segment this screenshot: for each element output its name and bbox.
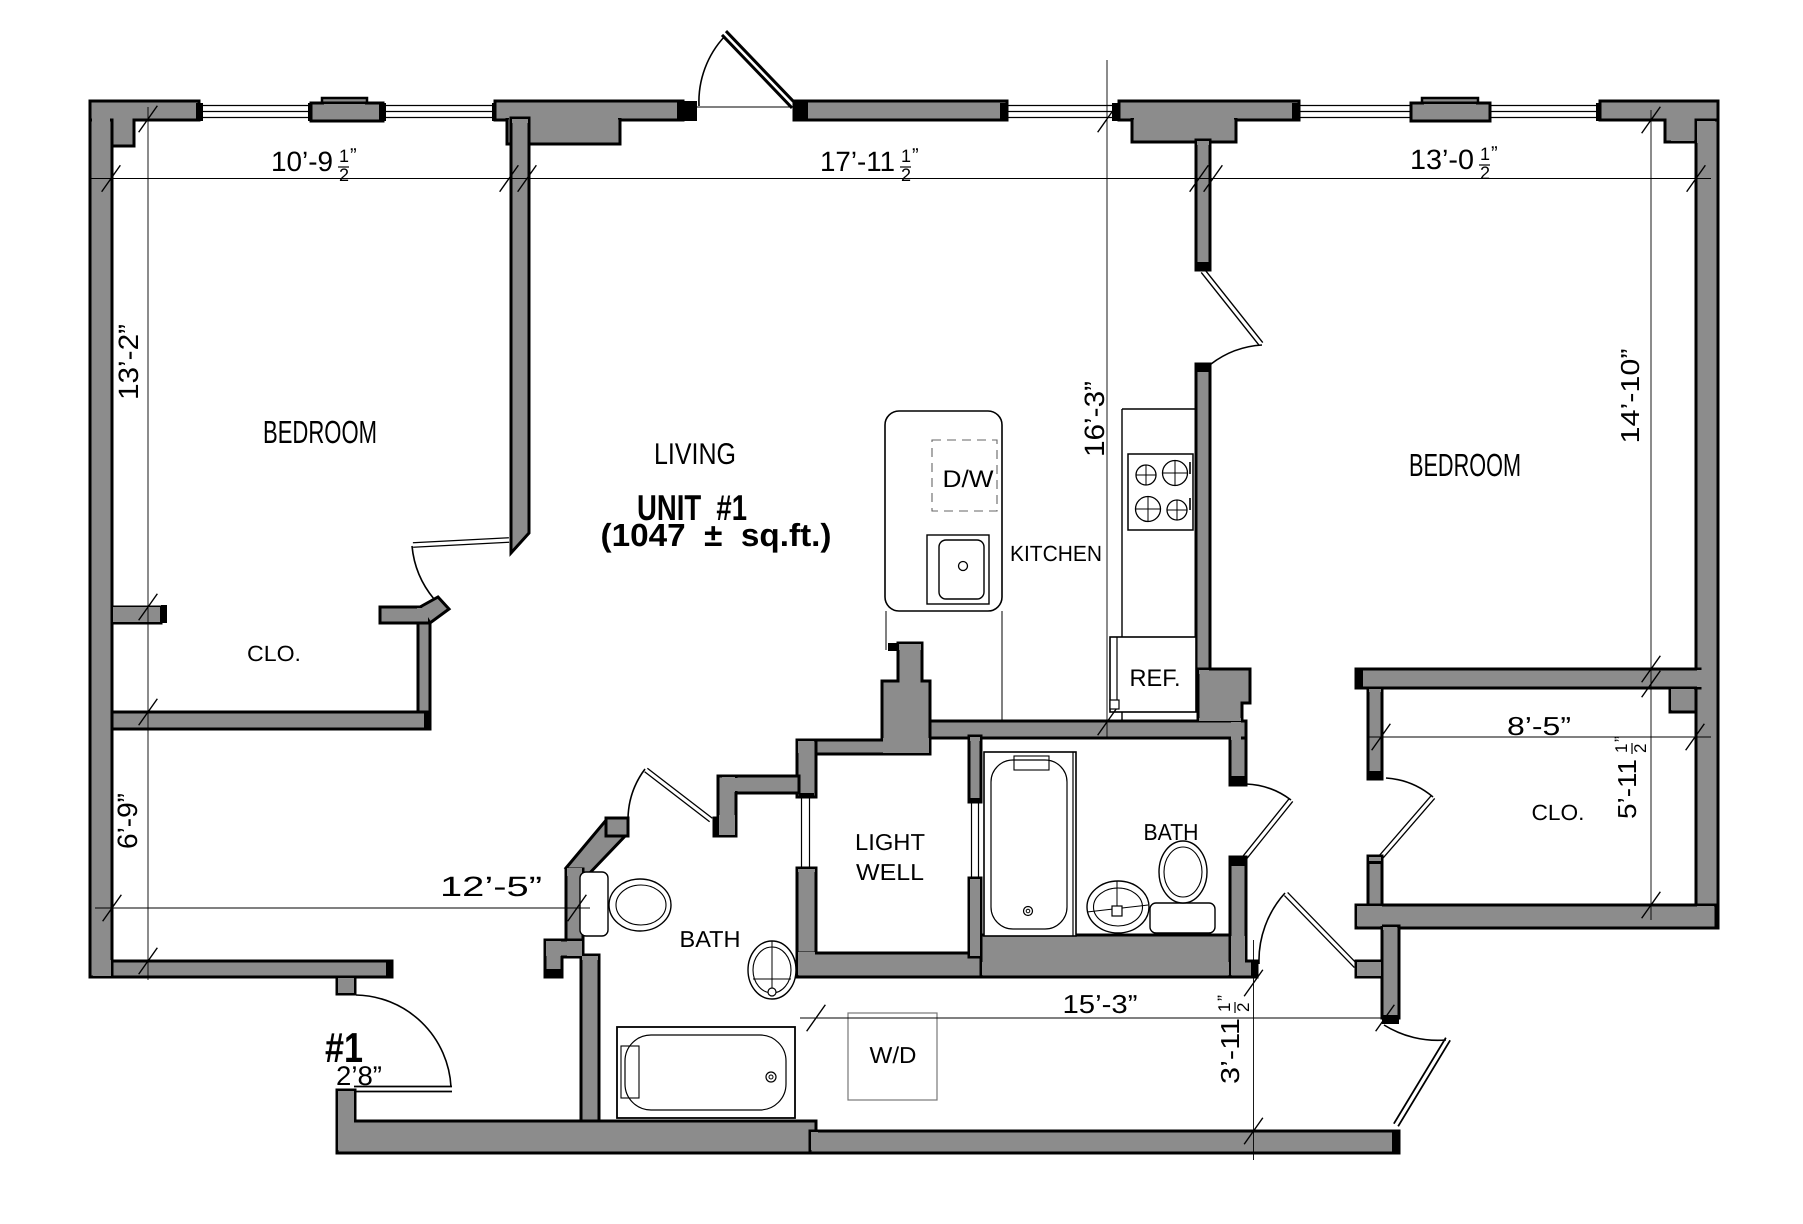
svg-text:14’-10”: 14’-10” — [1615, 349, 1645, 444]
svg-text:1: 1 — [1480, 144, 1490, 164]
svg-text:10’-9: 10’-9 — [271, 146, 333, 177]
svg-text:BEDROOM: BEDROOM — [1409, 447, 1521, 483]
svg-text:1: 1 — [1612, 744, 1631, 753]
svg-text:15’-3”: 15’-3” — [1063, 989, 1138, 1019]
svg-text:2: 2 — [1631, 744, 1650, 753]
svg-text:WELL: WELL — [856, 859, 924, 885]
svg-text:1: 1 — [1215, 1003, 1234, 1012]
svg-text:(1047 ± sq.ft.): (1047 ± sq.ft.) — [601, 517, 832, 553]
svg-text:”: ” — [1214, 995, 1234, 1001]
svg-text:KITCHEN: KITCHEN — [1010, 541, 1102, 566]
svg-text:13’-0: 13’-0 — [1410, 144, 1474, 175]
svg-text:CLO.: CLO. — [1532, 800, 1585, 825]
svg-text:2: 2 — [901, 165, 911, 185]
svg-text:13’-2”: 13’-2” — [113, 324, 144, 400]
svg-text:CLO.: CLO. — [247, 641, 301, 666]
svg-text:2: 2 — [1234, 1003, 1253, 1012]
svg-text:3’-11: 3’-11 — [1215, 1018, 1245, 1084]
svg-text:BATH: BATH — [680, 926, 741, 952]
svg-text:”: ” — [1491, 143, 1498, 165]
svg-text:REF.: REF. — [1130, 665, 1181, 692]
svg-text:2’8”: 2’8” — [336, 1061, 382, 1091]
svg-text:1: 1 — [339, 146, 349, 166]
svg-text:2: 2 — [339, 165, 349, 185]
svg-text:1: 1 — [901, 146, 911, 166]
svg-text:12’-5”: 12’-5” — [440, 871, 542, 902]
svg-text:”: ” — [1611, 736, 1631, 742]
svg-text:BEDROOM: BEDROOM — [263, 414, 377, 450]
svg-text:6’-9”: 6’-9” — [112, 793, 143, 849]
svg-text:D/W: D/W — [943, 466, 994, 493]
svg-text:17’-11: 17’-11 — [820, 146, 895, 177]
svg-text:”: ” — [912, 145, 919, 167]
svg-text:W/D: W/D — [870, 1042, 917, 1068]
svg-text:5’-11: 5’-11 — [1612, 759, 1642, 819]
svg-text:LIGHT: LIGHT — [855, 829, 925, 855]
svg-text:8’-5”: 8’-5” — [1507, 711, 1571, 741]
svg-text:”: ” — [350, 145, 357, 167]
svg-text:16’-3”: 16’-3” — [1079, 381, 1110, 457]
svg-text:LIVING: LIVING — [654, 438, 736, 471]
svg-text:BATH: BATH — [1144, 819, 1199, 845]
svg-text:2: 2 — [1480, 163, 1490, 183]
